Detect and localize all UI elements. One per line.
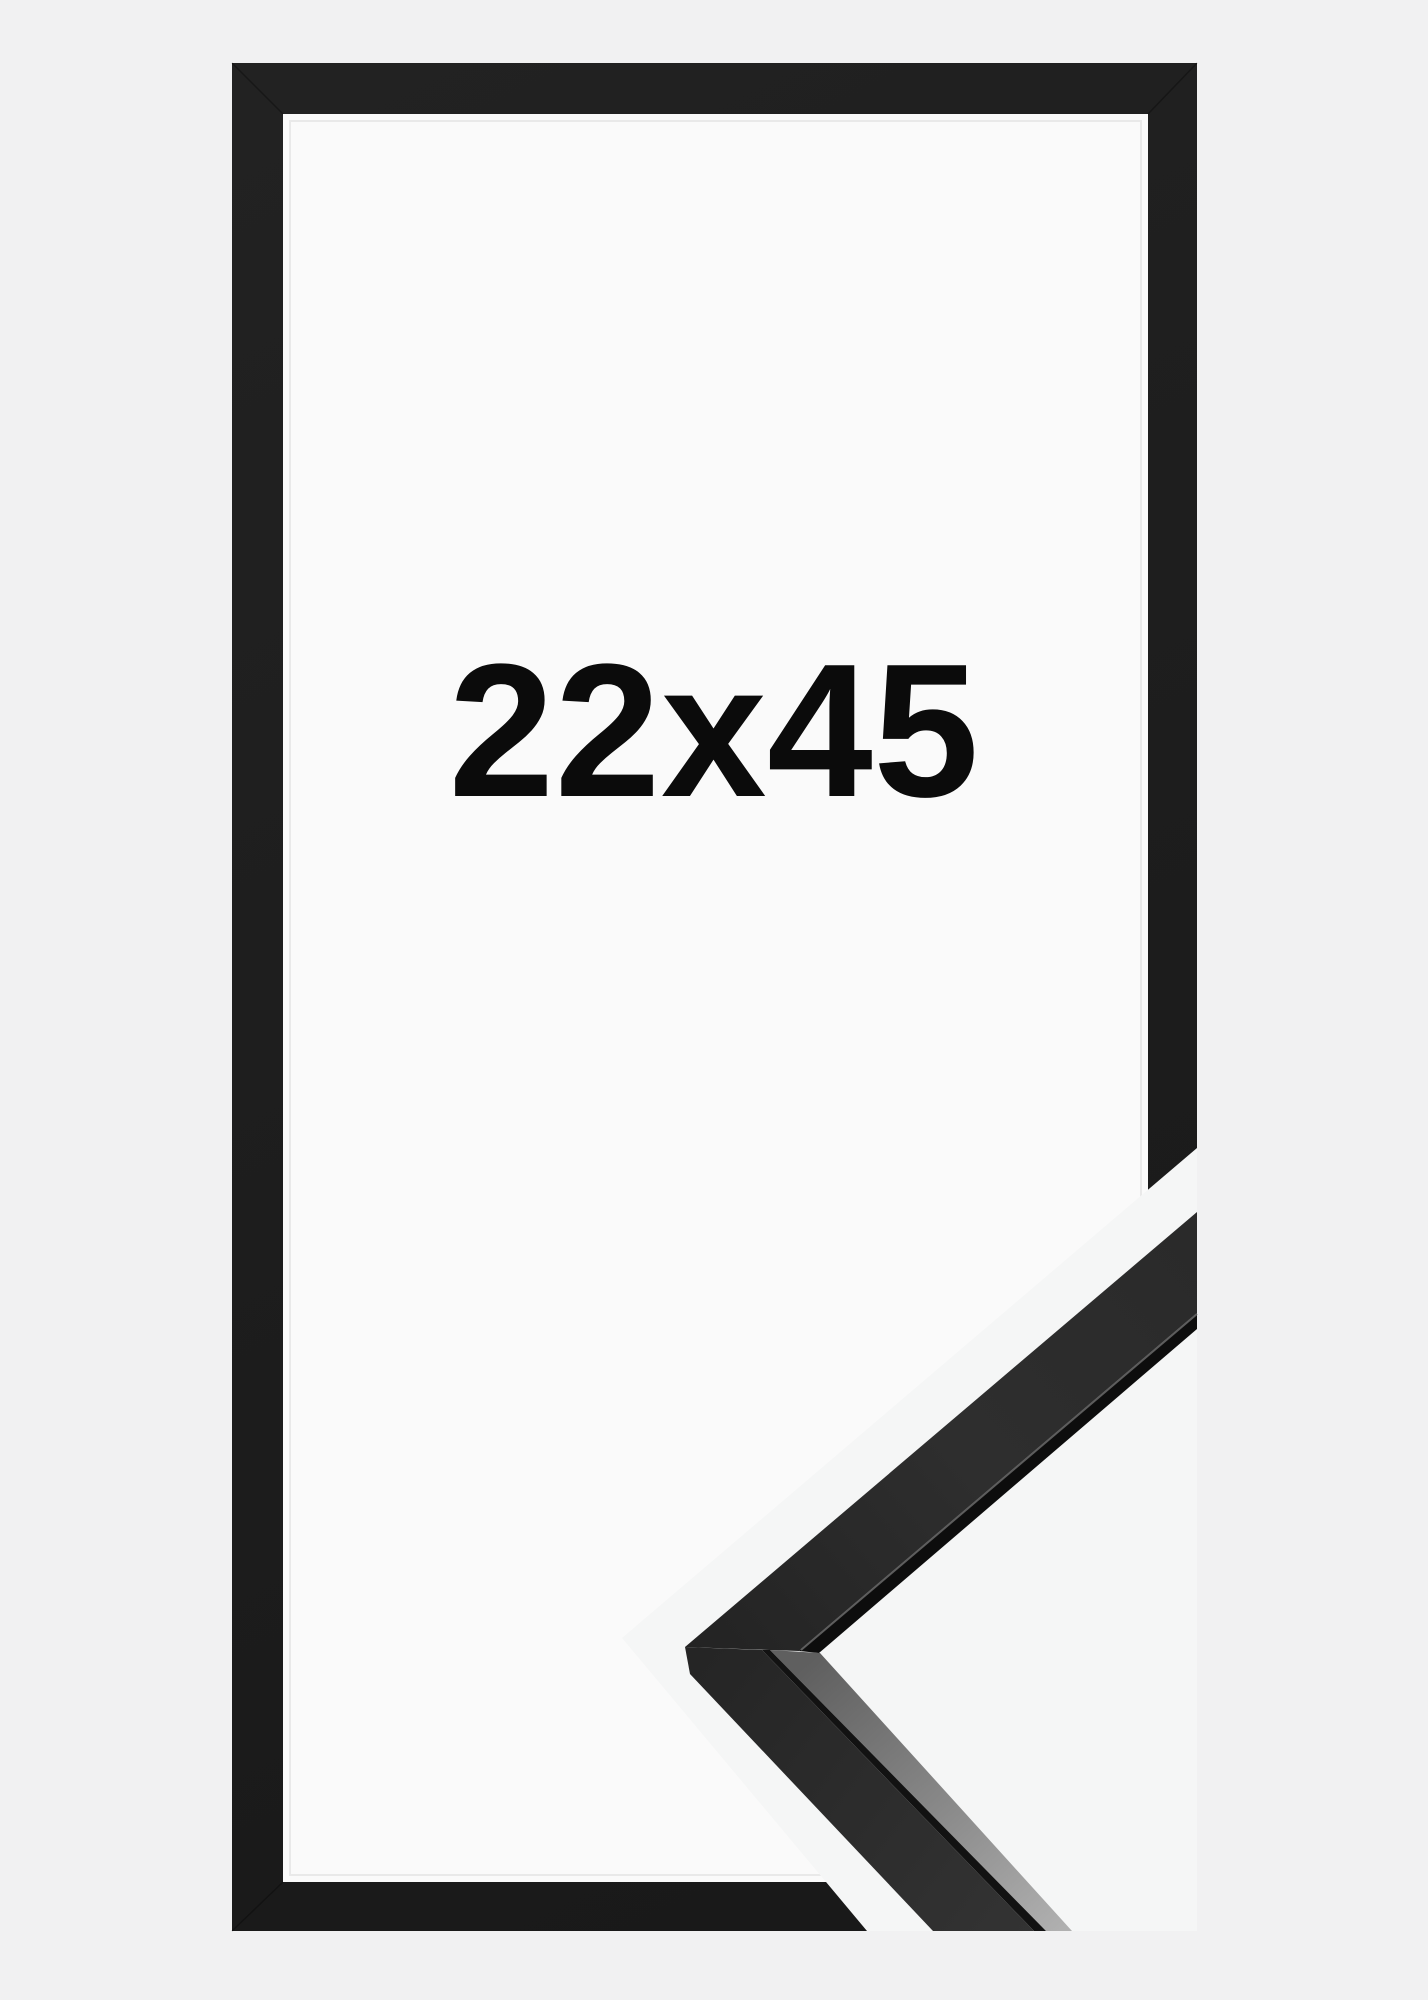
product-image: 22x45: [0, 0, 1428, 2000]
size-label: 22x45: [449, 636, 980, 826]
frame-scene: [0, 0, 1428, 2000]
